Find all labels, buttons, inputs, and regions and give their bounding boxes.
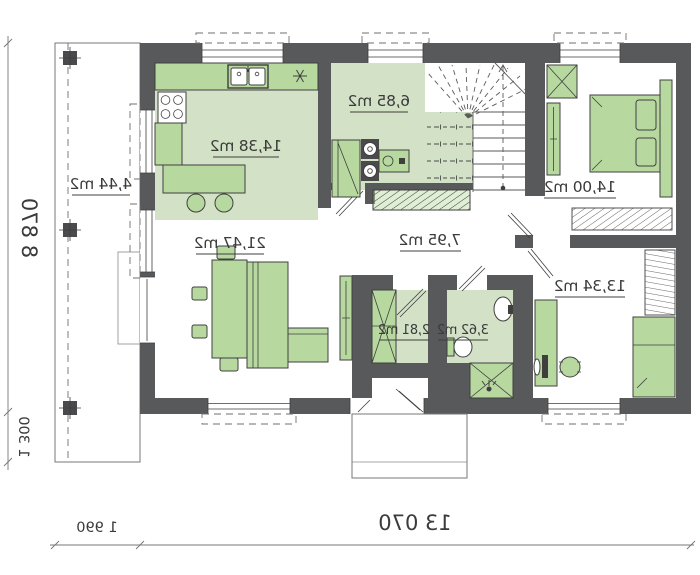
bedroom-area-label: 14,00 m2 — [544, 178, 616, 196]
kitchen-lower-counter — [155, 123, 182, 165]
radiator — [340, 276, 352, 360]
kitchen-area-label: 14,38 m2 — [210, 137, 282, 155]
shower — [470, 363, 513, 398]
dining-chair — [192, 325, 207, 338]
terrace — [55, 43, 140, 462]
utility-counter — [379, 150, 409, 172]
window-bedroom-top — [554, 33, 626, 63]
bathroom-door-leaf — [459, 266, 485, 291]
room-wardrobe — [645, 250, 675, 315]
closet-area-label: 2,81 m2 — [378, 323, 430, 338]
window-kitchen-top — [196, 33, 289, 63]
living-area-label: 21,47 m2 — [194, 234, 266, 252]
desk — [534, 300, 557, 386]
kitchen-sink — [228, 65, 268, 88]
floor-plan-page: 14,38 m2 6,85 m2 4,44 m2 21,47 m2 7,95 m… — [0, 0, 700, 575]
corner-sofa — [247, 262, 328, 368]
terrace-door — [140, 277, 155, 343]
entrance-steps — [352, 414, 467, 478]
window-dining-left — [130, 204, 155, 278]
window-living-bottom — [202, 398, 296, 424]
drying-area — [425, 112, 473, 183]
bedroom-wardrobe-long — [572, 208, 672, 230]
desk-chair — [559, 357, 581, 377]
room-door-leaf — [528, 249, 553, 278]
terrace-area-label: 4,44 m2 — [70, 175, 132, 193]
monitor-icon — [542, 355, 548, 378]
floor-plan-drawing: 14,38 m2 6,85 m2 4,44 m2 21,47 m2 7,95 m… — [0, 0, 700, 575]
stove — [158, 92, 186, 123]
hall-area-label: 7,95 m2 — [399, 231, 461, 249]
terrace-post-icon — [59, 47, 81, 69]
desk-lamp-icon — [534, 359, 540, 375]
dining-table — [212, 260, 247, 358]
dimension-terrace-width: 1 990 — [76, 520, 118, 536]
room-area-label: 13,34 m2 — [554, 277, 626, 295]
bedroom-wardrobe — [547, 65, 577, 98]
room-furniture — [534, 250, 675, 397]
terrace-post-icon — [59, 397, 81, 419]
utility-area-label: 6,85 m2 — [348, 92, 410, 110]
window-kitchen-left — [130, 104, 155, 179]
bedroom-shelf — [547, 103, 560, 175]
single-bed — [633, 317, 675, 397]
dimension-total-width: 13 070 — [378, 511, 451, 535]
bedroom-door-leaf — [508, 213, 533, 238]
headboard-panel — [660, 80, 672, 197]
terrace-post-icon — [59, 219, 81, 241]
kitchen-island — [163, 165, 245, 193]
dimension-total-height: 8 870 — [17, 198, 41, 258]
dining-chair — [220, 358, 238, 371]
living-furniture — [192, 246, 352, 371]
bar-stool — [215, 194, 233, 212]
bar-stool — [187, 194, 205, 212]
dining-chair — [192, 287, 207, 300]
bedroom-furniture — [547, 65, 672, 230]
tall-cabinet — [332, 140, 360, 197]
window-room-bottom — [542, 398, 626, 424]
dimension-porch-height: 1 300 — [15, 416, 31, 458]
bathroom-area-label: 3,62 m2 — [437, 323, 489, 338]
window-utility-top — [362, 33, 429, 63]
